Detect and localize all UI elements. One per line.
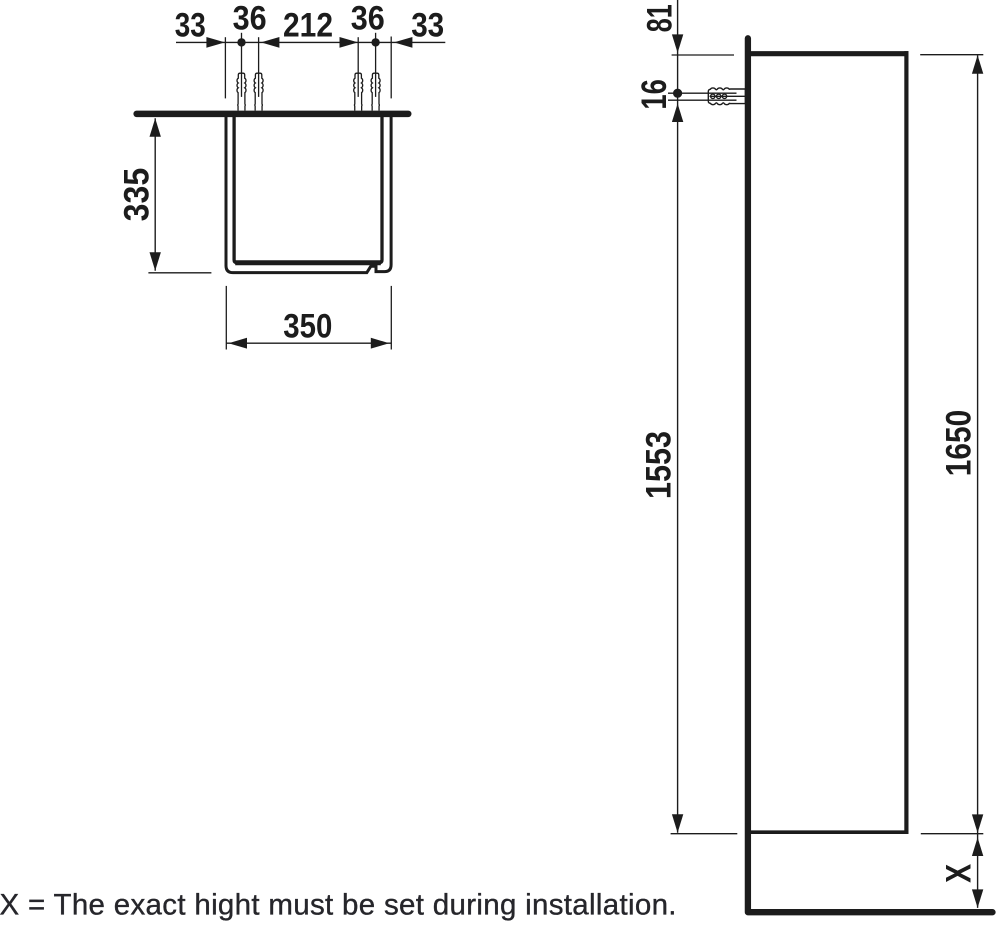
svg-text:33: 33 bbox=[175, 6, 206, 44]
svg-text:X: X bbox=[939, 864, 979, 883]
svg-text:1650: 1650 bbox=[938, 410, 978, 477]
svg-text:81: 81 bbox=[640, 4, 680, 32]
svg-text:335: 335 bbox=[117, 168, 157, 222]
svg-text:36: 36 bbox=[233, 0, 267, 38]
svg-text:36: 36 bbox=[351, 0, 385, 38]
svg-text:350: 350 bbox=[283, 308, 332, 346]
svg-text:33: 33 bbox=[411, 6, 444, 44]
svg-text:212: 212 bbox=[283, 6, 333, 44]
svg-text:16: 16 bbox=[634, 79, 674, 110]
svg-text:1553: 1553 bbox=[638, 431, 678, 499]
svg-text:X = The exact hight must be se: X = The exact hight must be set during i… bbox=[0, 888, 677, 921]
